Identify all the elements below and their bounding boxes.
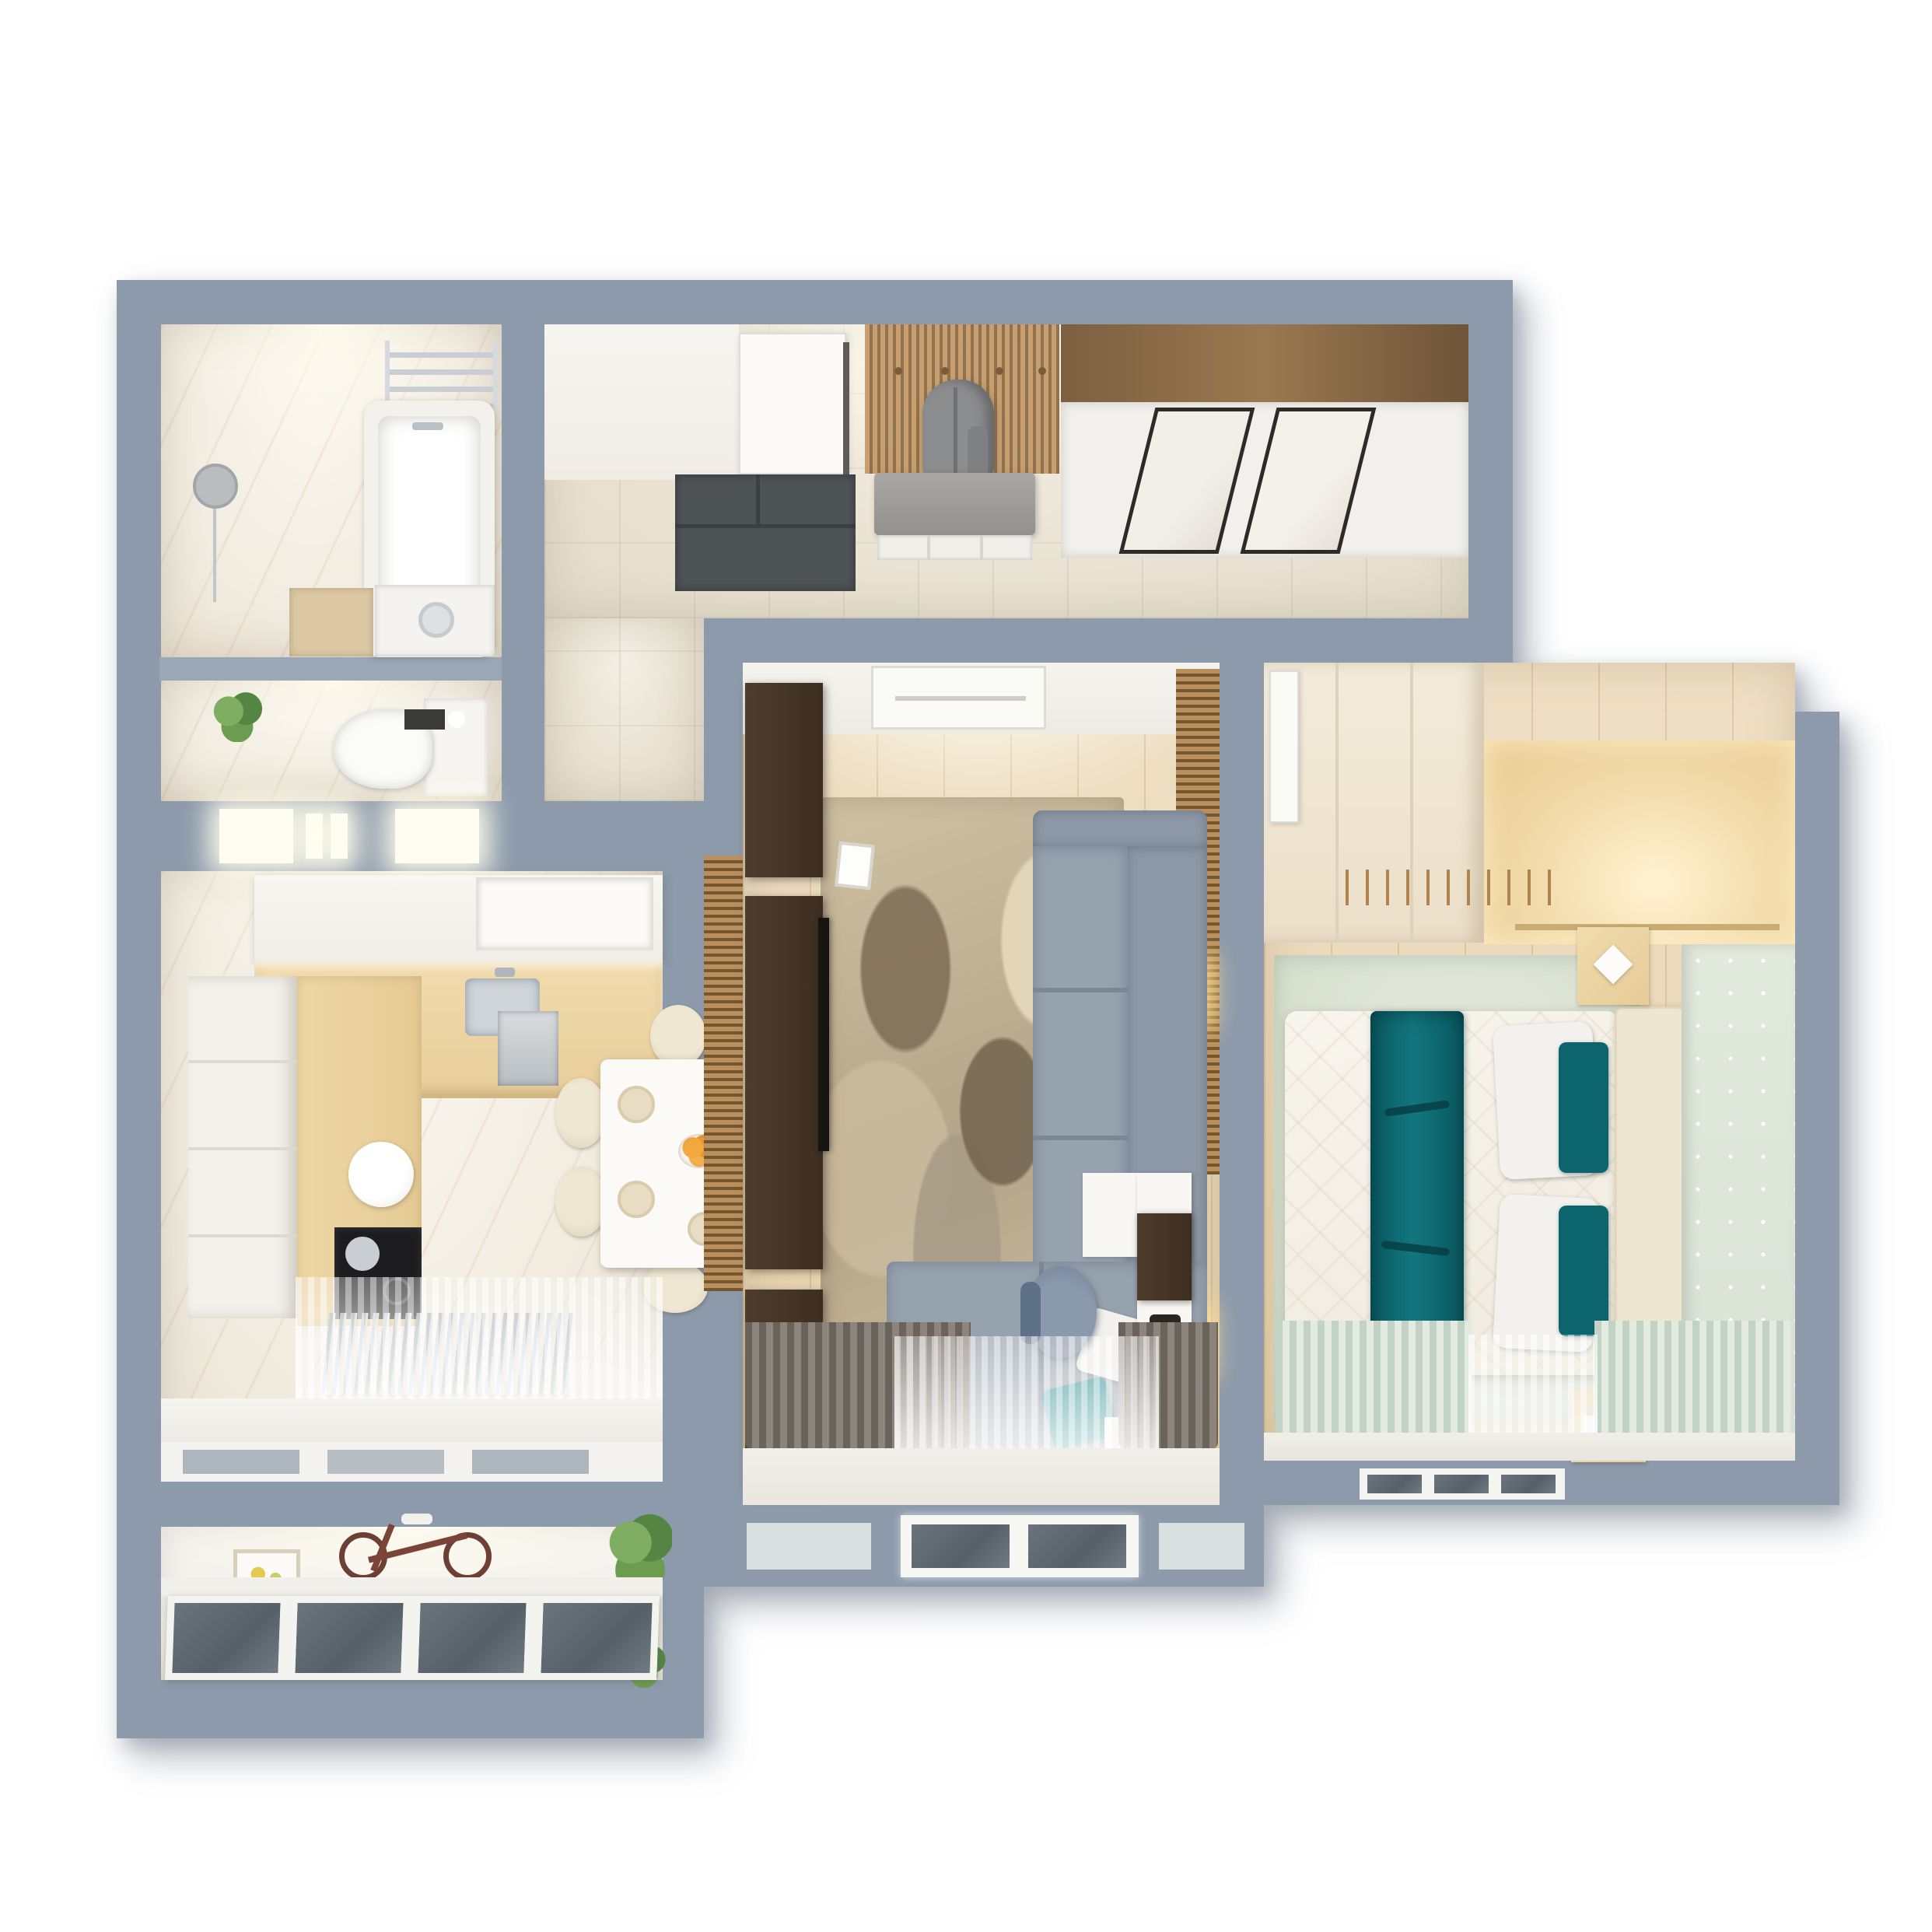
sofa-seam — [1033, 988, 1128, 992]
cabinet-front-line — [188, 1060, 297, 1063]
bedroom-curtain-right — [1594, 1321, 1790, 1450]
wall-bath-wc-divider — [159, 657, 502, 681]
wall-bedroom-right — [1795, 712, 1839, 1505]
washing-machine — [375, 585, 495, 656]
floor-plan-render — [0, 0, 1932, 1932]
hall-bench — [874, 473, 1035, 535]
wardrobe-seam — [1335, 663, 1339, 943]
entry-door — [739, 333, 846, 474]
door-glow-2 — [306, 814, 323, 859]
towel-rack — [385, 341, 498, 409]
living-sheer-curtain — [894, 1336, 1159, 1451]
coat-hook-icon — [1038, 367, 1046, 375]
window-pane — [1367, 1475, 1422, 1493]
bath-faucet-icon — [412, 422, 443, 430]
room-hallway-corridor — [544, 618, 704, 801]
balcony-glazing — [165, 1596, 660, 1680]
runner-twist — [1384, 1100, 1451, 1117]
dining-chair — [555, 1078, 607, 1148]
round-mirror-icon — [193, 464, 238, 509]
living-entry-door — [871, 666, 1046, 730]
tv-wall-column — [745, 683, 823, 877]
plate-icon — [618, 1086, 655, 1123]
glazing-mullion — [401, 1603, 420, 1673]
door-glow-4 — [395, 809, 479, 863]
coat-hook-icon — [941, 367, 949, 375]
kitchen-left-fronts — [188, 976, 297, 1318]
niche-hangers — [1346, 870, 1556, 905]
wall-living-left-lower — [704, 1282, 743, 1505]
window-pane — [1501, 1475, 1556, 1493]
pot-icon — [345, 1237, 380, 1271]
window-pane — [1434, 1475, 1489, 1493]
doormat-seam-h — [675, 524, 856, 528]
bedroom-wardrobe-niche — [1484, 740, 1795, 944]
bike-saddle — [401, 1514, 432, 1524]
wall-balcony-bottom — [117, 1680, 704, 1738]
glazing-mullion — [278, 1603, 297, 1673]
hanging-coat — [922, 380, 994, 481]
living-window-frame-side — [1159, 1523, 1244, 1570]
living-window-frame — [901, 1515, 1139, 1577]
sofa-armrest-top — [1033, 810, 1207, 848]
hall-left-wall-face — [544, 324, 739, 480]
coat-fold — [954, 387, 957, 473]
shoe-shelf-divider — [927, 535, 930, 560]
window-pane — [1028, 1524, 1126, 1568]
wall-living-left-upper — [704, 663, 743, 865]
deco-pillow-diamond — [1594, 945, 1633, 985]
desk-chair-back — [1020, 1282, 1041, 1344]
bedroom-window-frame — [1360, 1468, 1565, 1500]
tv-screen — [818, 918, 829, 1151]
living-window-frame-side — [747, 1523, 871, 1570]
doormat-seam-v — [756, 474, 760, 524]
kitchen-faucet-icon — [495, 968, 515, 977]
glazing-pane — [541, 1603, 652, 1673]
wardrobe-top-panel — [1061, 324, 1468, 402]
coat-hook-icon — [996, 367, 1003, 375]
paper-roll-icon — [448, 711, 465, 728]
door-leaf-line — [895, 696, 1026, 701]
wc-plant-icon — [208, 691, 266, 742]
dining-chair — [650, 1005, 706, 1067]
shoe-shelf — [877, 535, 1032, 560]
balcony-sill — [161, 1577, 663, 1596]
bed-pillow-teal — [1559, 1206, 1608, 1336]
sofa-seam — [1033, 1136, 1128, 1140]
coat-hook-icon — [894, 367, 902, 375]
desk-storage-box — [1137, 1213, 1192, 1300]
oven-front — [498, 1011, 558, 1086]
apartment-plan — [0, 0, 1932, 1932]
bedroom-curtain-left — [1276, 1321, 1472, 1450]
window-pane — [327, 1450, 444, 1474]
shoe-shelf-divider — [980, 535, 983, 560]
bicycle-icon — [334, 1500, 502, 1587]
kettle-icon — [348, 1142, 414, 1207]
bed-pillow-teal — [1559, 1042, 1608, 1173]
washer-door-icon — [418, 602, 454, 638]
kitchen-hood — [476, 877, 653, 950]
cabinet-front-line — [188, 1147, 297, 1150]
vanity-counter — [289, 588, 373, 656]
door-glow-3 — [331, 814, 348, 859]
window-pane — [183, 1450, 299, 1474]
glazing-pane — [418, 1603, 526, 1673]
wall-bathroom-right — [502, 280, 544, 871]
window-pane — [912, 1524, 1010, 1568]
paper-holder-icon — [404, 709, 445, 730]
door-glow-1 — [219, 809, 293, 863]
living-slat-wall-left — [704, 856, 743, 1291]
plate-icon — [618, 1181, 655, 1218]
runner-twist — [1381, 1241, 1451, 1257]
wall-frame-icon — [835, 842, 875, 890]
mirror-stand — [213, 509, 216, 602]
tv-wall-column — [745, 896, 823, 1269]
dining-chair — [555, 1167, 607, 1237]
bedroom-door-leaf — [1269, 670, 1299, 823]
wall-living-bedroom — [1220, 618, 1264, 1505]
glazing-pane — [172, 1603, 280, 1673]
cabinet-front-line — [188, 1234, 297, 1237]
wall-hall-south — [704, 618, 1513, 663]
window-pane — [472, 1450, 589, 1474]
glazing-pane — [295, 1603, 403, 1673]
nightstand — [1577, 927, 1649, 1005]
kitchen-window-sill — [161, 1398, 663, 1442]
kitchen-window-frame — [161, 1442, 663, 1482]
glazing-mullion — [523, 1603, 543, 1673]
doormat — [675, 474, 856, 591]
wall-top — [117, 280, 1513, 324]
bedroom-window-sill — [1264, 1433, 1795, 1461]
living-window-sill — [743, 1448, 1220, 1505]
entry-door-edge — [843, 342, 849, 474]
kitchen-sheer-curtain — [296, 1277, 663, 1400]
